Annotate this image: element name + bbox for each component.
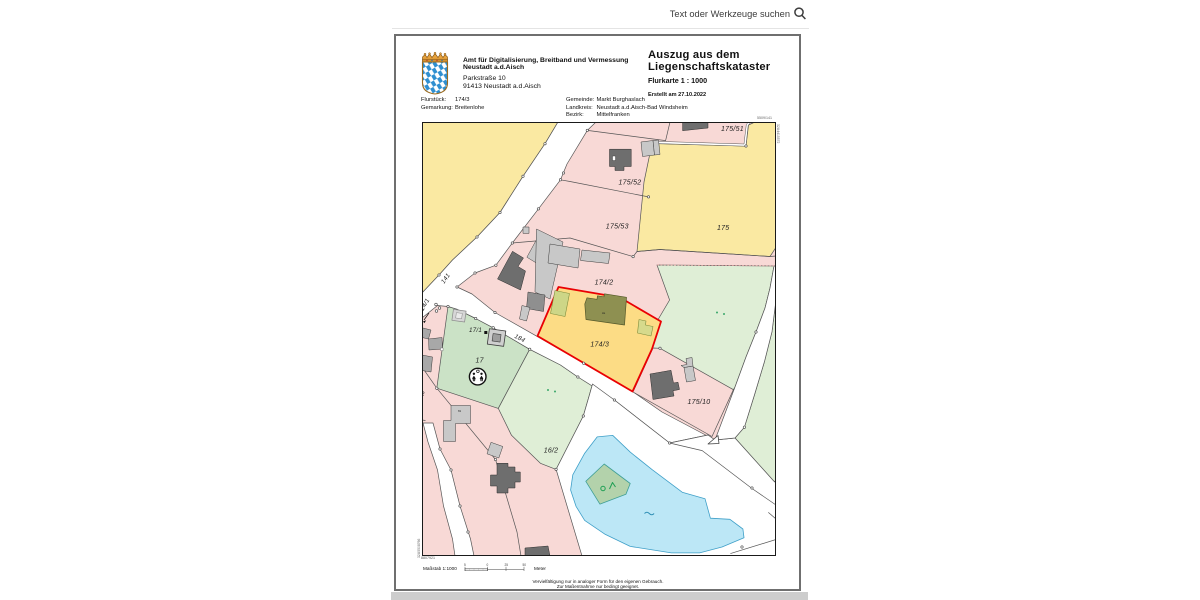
svg-text:175: 175	[717, 225, 729, 232]
svg-text:16/2: 16/2	[544, 448, 559, 455]
svg-text:175/10: 175/10	[688, 399, 711, 406]
svg-text:50: 50	[523, 563, 527, 567]
svg-text:175/51: 175/51	[721, 126, 744, 133]
svg-text:174/3: 174/3	[590, 341, 609, 348]
svg-text:175/53: 175/53	[606, 224, 629, 231]
svg-text:175/52: 175/52	[619, 180, 642, 187]
svg-text:17/1: 17/1	[469, 327, 482, 334]
svg-text:5: 5	[464, 563, 466, 567]
svg-text:0: 0	[487, 563, 489, 567]
svg-text:17: 17	[476, 357, 485, 364]
svg-text:25: 25	[505, 563, 509, 567]
svg-text:174/2: 174/2	[595, 280, 614, 287]
